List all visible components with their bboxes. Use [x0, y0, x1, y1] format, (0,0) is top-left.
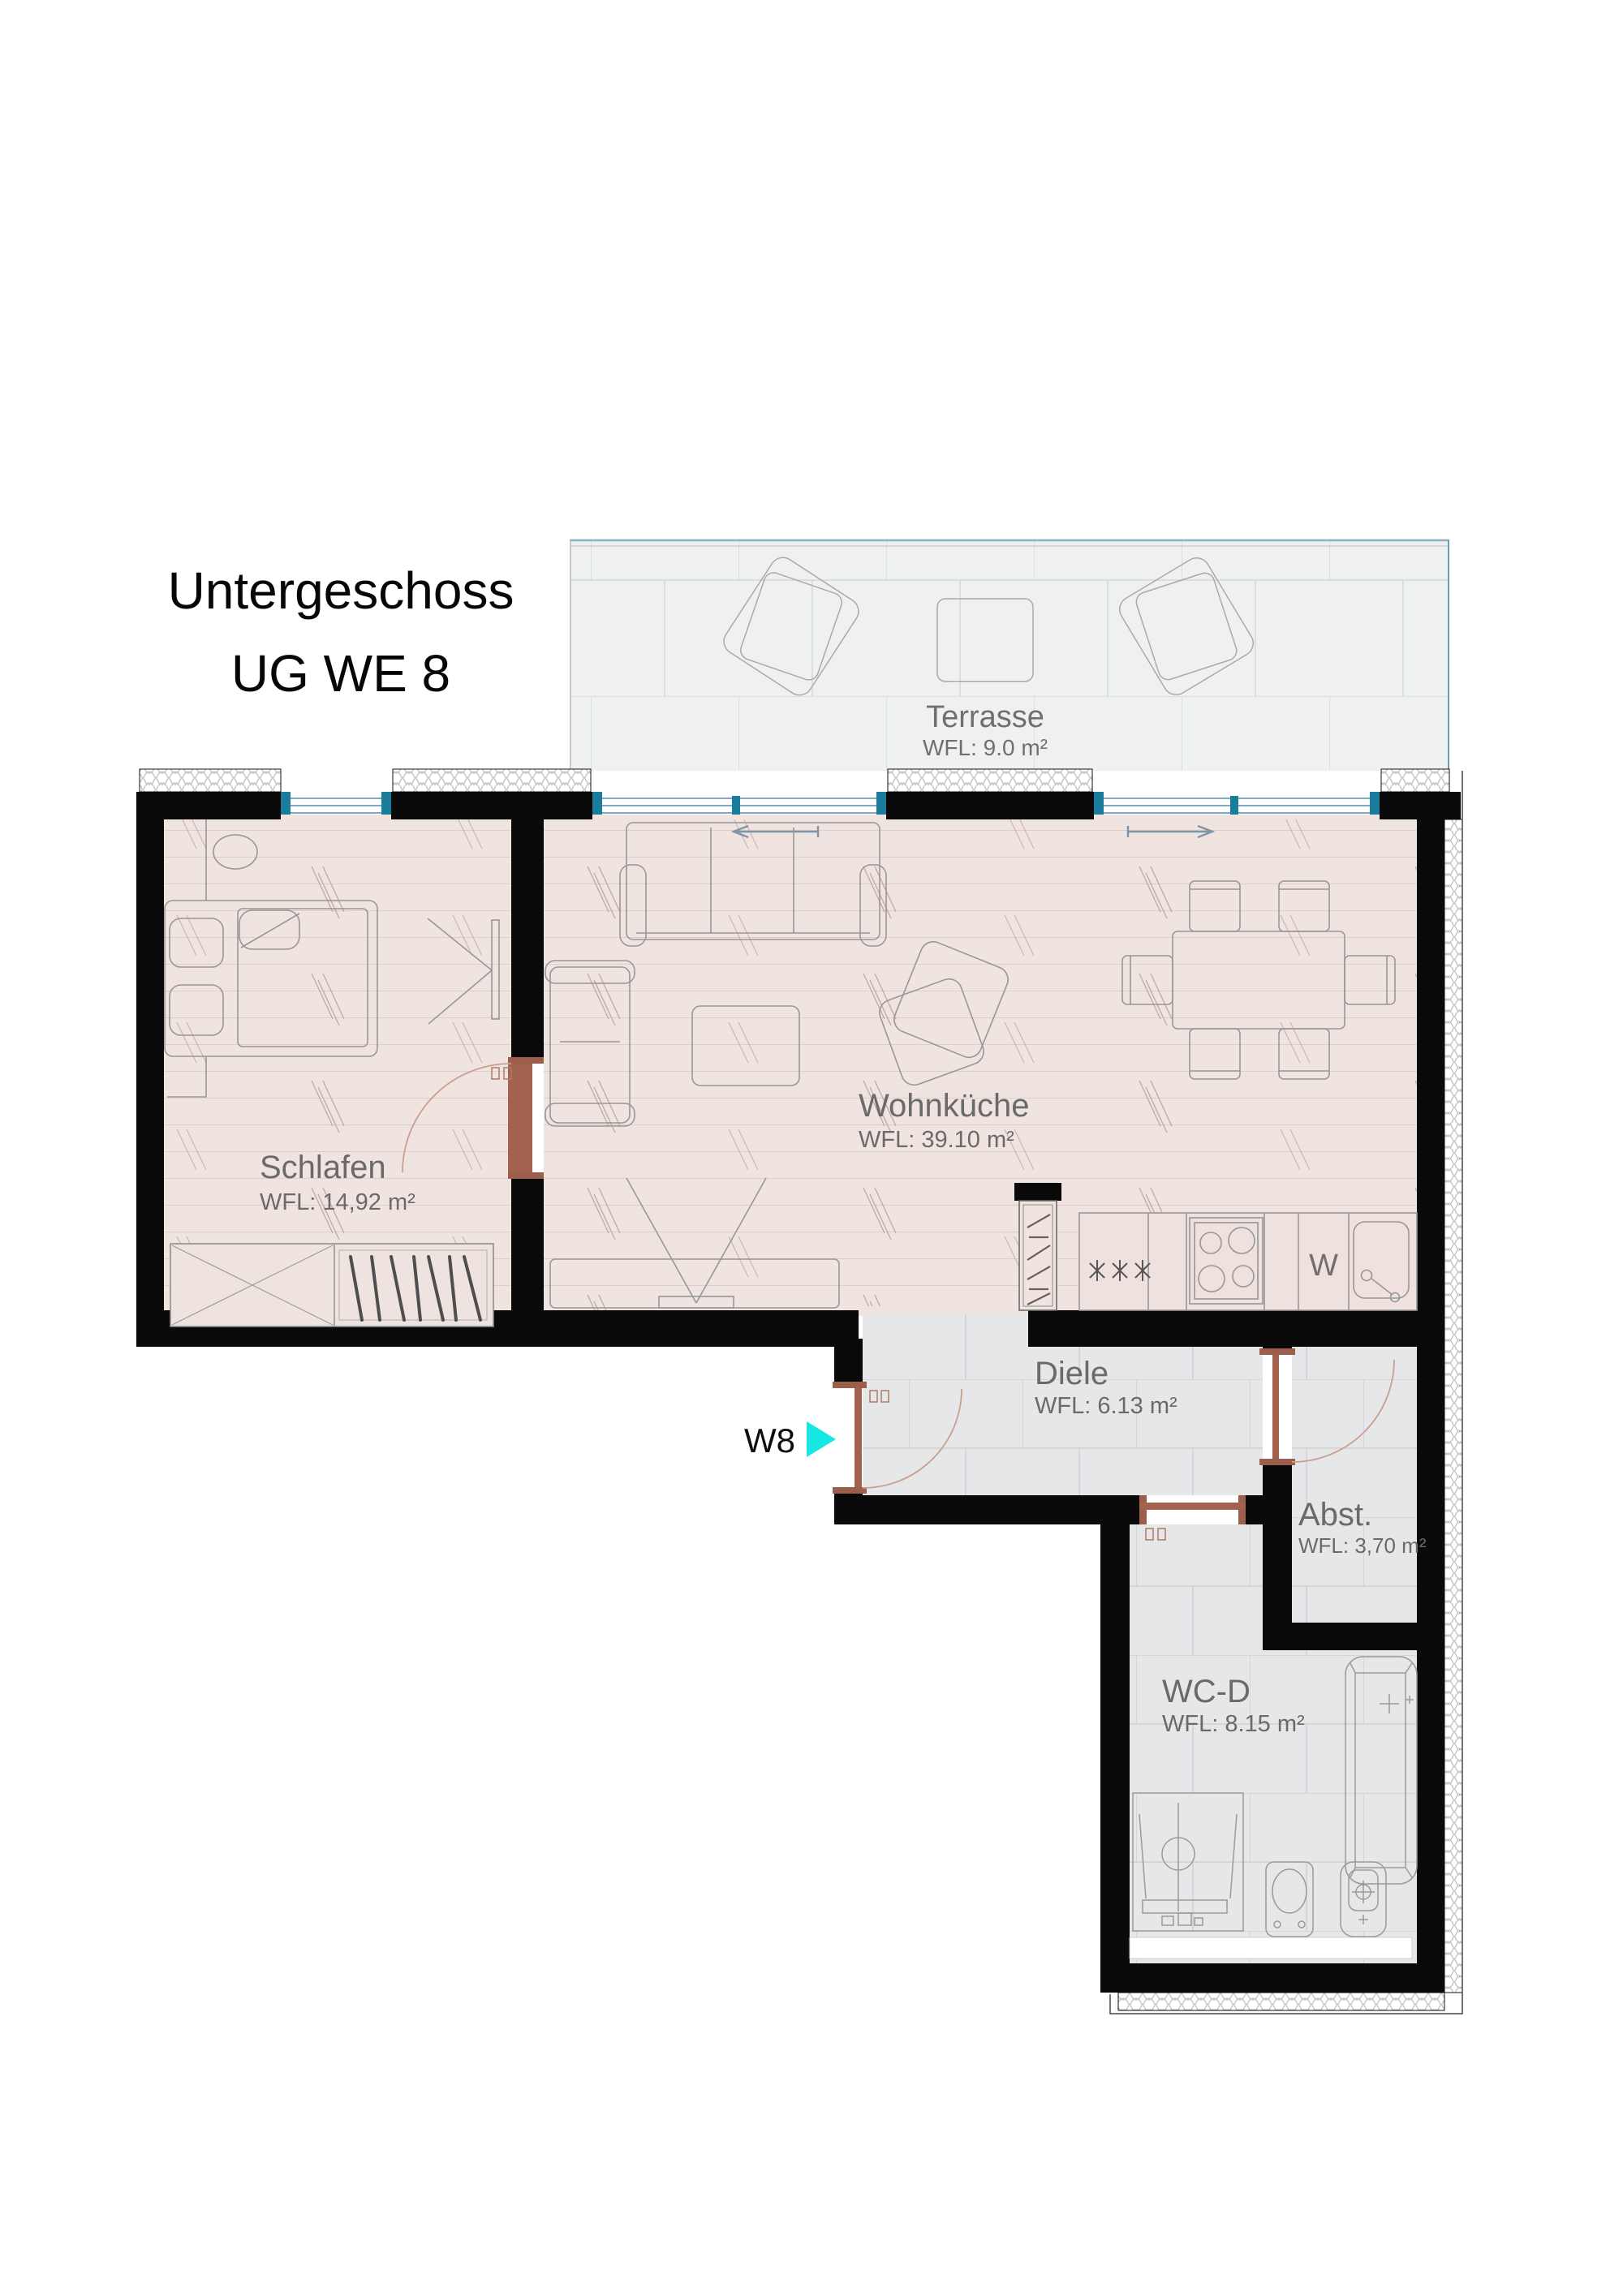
floor-plan-canvas: Terrasse WFL: 9.0 m² — [0, 0, 1623, 2296]
window-wohnkueche-left — [592, 792, 886, 819]
window-schlafen — [281, 792, 391, 819]
wohnkueche-label: Wohnküche — [859, 1088, 1030, 1124]
schlafen-area: WFL: 14,92 m² — [260, 1189, 415, 1215]
page-title-line1: Untergeschoss — [168, 561, 514, 620]
wall-niche — [1130, 1937, 1412, 1958]
wc-area: WFL: 8.15 m² — [1162, 1711, 1305, 1737]
kitchen-counter: W — [1079, 1213, 1417, 1310]
abstellraum-label: Abst. — [1298, 1497, 1372, 1533]
floor-diele-left — [863, 1314, 1028, 1495]
floor-abstellraum — [1292, 1347, 1417, 1623]
washer-label: W — [1309, 1249, 1338, 1283]
unit-marker: W8 — [744, 1421, 836, 1460]
room-terrasse: Terrasse WFL: 9.0 m² — [570, 539, 1449, 771]
diele-area: WFL: 6.13 m² — [1035, 1393, 1177, 1419]
terrasse-label: Terrasse — [926, 700, 1044, 734]
floor-plan-page: Terrasse WFL: 9.0 m² — [0, 0, 1623, 2296]
floors — [164, 819, 1417, 1963]
duct-shaft — [1019, 1201, 1057, 1310]
schlafen-label: Schlafen — [260, 1150, 386, 1185]
diele-label: Diele — [1035, 1356, 1109, 1391]
abstellraum-area: WFL: 3,70 m² — [1298, 1533, 1427, 1558]
wohnkueche-area: WFL: 39.10 m² — [859, 1127, 1014, 1153]
wc-label: WC-D — [1162, 1674, 1251, 1709]
entry-arrow-icon — [807, 1421, 836, 1457]
unit-marker-label: W8 — [744, 1421, 795, 1460]
window-wohnkueche-right — [1094, 792, 1380, 819]
floor-schlafen — [164, 819, 511, 1310]
terrasse-area: WFL: 9.0 m² — [923, 735, 1048, 760]
wardrobe — [170, 1244, 493, 1326]
page-title-line2: UG WE 8 — [231, 644, 450, 703]
